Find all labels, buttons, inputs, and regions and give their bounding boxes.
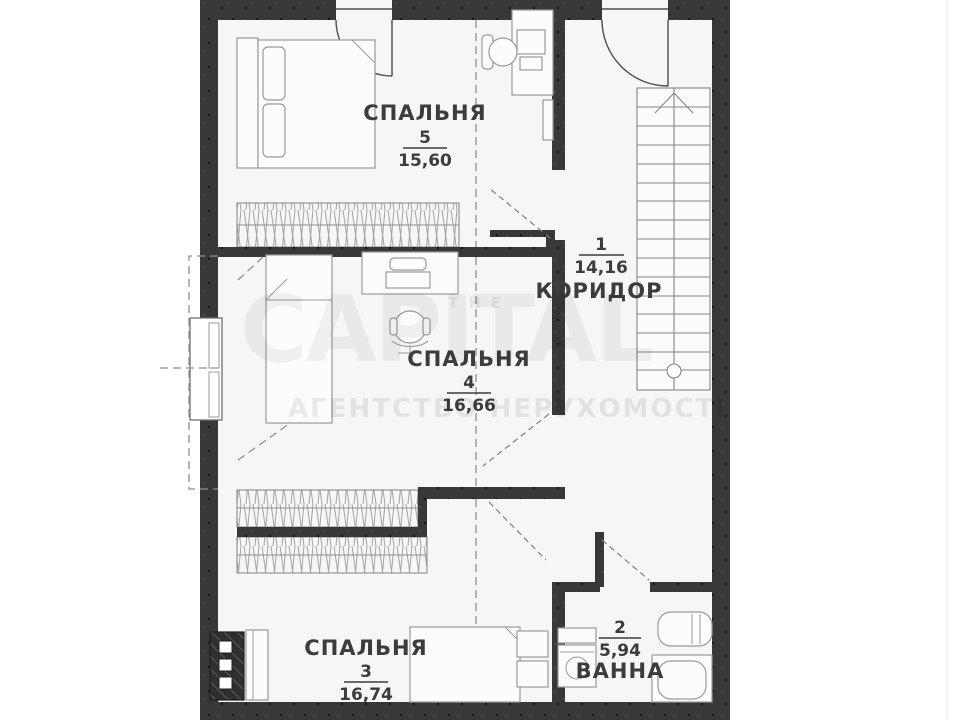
pillow bbox=[263, 47, 285, 100]
chair-armrest bbox=[423, 318, 430, 335]
photo-edge-line bbox=[946, 0, 948, 720]
room-name: СПАЛЬНЯ bbox=[407, 347, 530, 371]
room-number: 3 bbox=[360, 662, 372, 682]
room-number: 1 bbox=[595, 235, 607, 255]
single-bed bbox=[266, 255, 332, 423]
office-chair bbox=[394, 311, 426, 343]
pillow bbox=[263, 104, 285, 157]
window bbox=[190, 318, 222, 420]
staircase bbox=[637, 88, 710, 390]
chair-armrest bbox=[390, 318, 397, 335]
room-area: 16,66 bbox=[442, 396, 496, 416]
room-area: 5,94 bbox=[599, 641, 641, 661]
flue-opening bbox=[219, 677, 232, 689]
floorplan-canvas: СПАЛЬНЯ 5 15,60 1 14,16 КОРИДОР СПАЛЬНЯ … bbox=[0, 0, 960, 720]
furniture-bedroom5 bbox=[237, 38, 375, 168]
room-area: 14,16 bbox=[574, 258, 628, 278]
room-name: СПАЛЬНЯ bbox=[363, 101, 486, 125]
room-name: КОРИДОР bbox=[536, 279, 663, 303]
room-number: 4 bbox=[463, 373, 475, 393]
floor-plan-drawing: СПАЛЬНЯ 5 15,60 1 14,16 КОРИДОР СПАЛЬНЯ … bbox=[0, 0, 960, 720]
room-number: 2 bbox=[614, 618, 626, 638]
nightstand bbox=[517, 661, 548, 687]
flue-opening bbox=[219, 641, 232, 653]
room-area: 15,60 bbox=[398, 151, 452, 171]
room-number: 5 bbox=[419, 128, 431, 148]
laptop-icon bbox=[517, 30, 545, 54]
radiator bbox=[246, 630, 268, 700]
nightstand bbox=[517, 631, 548, 657]
sink-icon bbox=[658, 612, 712, 646]
room-name: ВАННА bbox=[576, 659, 665, 683]
double-bed-headboard bbox=[237, 38, 258, 168]
flue-opening bbox=[219, 659, 232, 671]
laptop-icon bbox=[390, 258, 426, 270]
shelf bbox=[543, 100, 553, 140]
stairs-pole-icon bbox=[667, 364, 681, 378]
office-chair bbox=[489, 38, 517, 66]
room-name: СПАЛЬНЯ bbox=[304, 636, 427, 660]
bathroom-cabinet bbox=[558, 628, 596, 643]
room-area: 16,74 bbox=[339, 685, 393, 705]
keyboard-icon bbox=[520, 57, 542, 70]
laptop-keyboard-icon bbox=[386, 272, 430, 288]
bathtub-basin bbox=[658, 661, 706, 699]
